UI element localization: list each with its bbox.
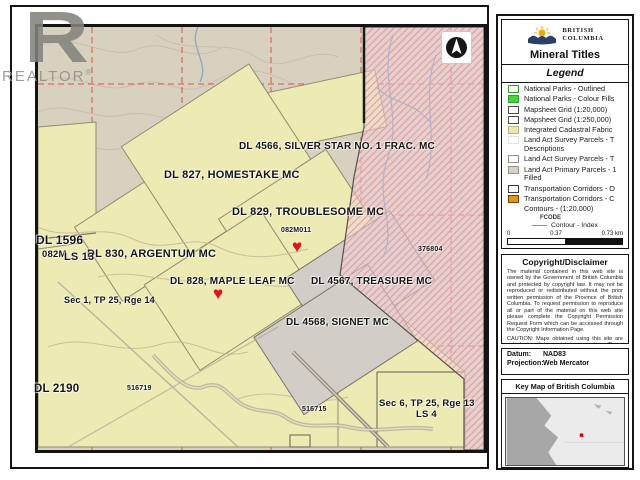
legend-item: Integrated Cadastral Fabric (508, 126, 624, 135)
tenure-label-516715: 516715 (302, 406, 327, 413)
legend-item: National Parks - Colour Fills (508, 95, 624, 104)
national-parks-outlined-swatch-icon (508, 85, 519, 93)
keymap-title: Key Map of British Columbia (502, 380, 628, 394)
parcel-label-signet: DL 4568, SIGNET MC (286, 317, 389, 328)
transport-corridors-o-swatch-icon (508, 185, 519, 193)
realtor-r-logo-icon: R (24, 2, 89, 74)
realtor-wordmark: REALTOR® (2, 68, 93, 85)
scale-tick-mid: 0.37 (550, 231, 562, 237)
agency-name: BRITISH COLUMBIA (562, 27, 603, 43)
legend-item: Transportation Corridors - C (508, 195, 624, 204)
parcel-label-argentum: DL 830, ARGENTUM MC (87, 248, 216, 260)
copyright-body: The material contained in this web site … (507, 269, 623, 334)
mapsheet-grid-20k-swatch-icon (508, 106, 519, 114)
land-act-survey-swatch-icon (508, 155, 519, 163)
parcel-label-silver-star: DL 4566, SILVER STAR NO. 1 FRAC. MC (239, 141, 435, 152)
bc-sun-mountains-icon (526, 24, 558, 46)
keymap-location-marker (580, 433, 583, 436)
legend-box: BRITISH COLUMBIA Mineral Titles Legend N… (501, 19, 629, 249)
registered-symbol: ® (85, 68, 93, 77)
scale-ratio: 1: 18,055 (507, 248, 623, 249)
parcel-label-maple-leaf: DL 828, MAPLE LEAF MC (170, 276, 295, 287)
legend-item: Land Act Primary Parcels - 1 Filled (508, 166, 624, 184)
parcel-label-ls4: LS 4 (416, 409, 437, 420)
parcel-label-dl1596: DL 1596 (36, 233, 83, 247)
legend-title: Legend (502, 67, 628, 79)
mapsheet-grid-250k-swatch-icon (508, 116, 519, 124)
mapsheet-label-082m: 082M (42, 249, 67, 260)
land-act-primary-swatch-icon (508, 166, 519, 174)
parcel-label-treasure: DL 4567, TREASURE MC (311, 276, 432, 287)
parcel-label-ls13: LS 13 (64, 251, 94, 263)
claim-marker-heart-icon: ♥ (292, 238, 302, 255)
copyright-caution: CAUTION: Maps obtained using this site a… (507, 336, 623, 344)
legend-item: Mapsheet Grid (1:250,000) (508, 116, 624, 125)
parcel-label-troublesome: DL 829, TROUBLESOME MC (232, 206, 384, 218)
scale-tick-end: 0.73 km (602, 231, 623, 237)
national-parks-fill-swatch-icon (508, 95, 519, 103)
projection-value: Web Mercator (543, 360, 589, 367)
datum-row: Datum: NAD83 (507, 351, 628, 358)
datum-box: Datum: NAD83 Projection: Web Mercator (501, 348, 629, 375)
claim-marker-heart-icon: ♥ (213, 285, 223, 302)
fcode-heading: FCODE (540, 215, 628, 221)
legend-item: Land Act Survey Parcels - T Descriptions (508, 136, 624, 154)
parcel-label-dl2190: DL 2190 (34, 383, 79, 395)
keymap-box: Key Map of British Columbia (501, 379, 629, 468)
mapsheet-code-label: 082M011 (281, 227, 311, 234)
tenure-label-376804: 376804 (418, 246, 443, 253)
scale-tick-0: 0 (507, 231, 510, 237)
keymap-canvas (505, 397, 625, 466)
scale-bar-block: 0 0.37 0.73 km 1: 18,055 (507, 231, 623, 249)
copyright-box: Copyright/Disclaimer The material contai… (501, 254, 629, 344)
copyright-title: Copyright/Disclaimer (502, 257, 628, 267)
bc-government-logo: BRITISH COLUMBIA (502, 24, 628, 46)
legend-item: Land Act Survey Parcels - T (508, 155, 624, 164)
cadastral-fabric-swatch-icon (508, 126, 519, 134)
parcel-label-sec1: Sec 1, TP 25, Rge 14 (64, 295, 155, 305)
datum-value: NAD83 (543, 351, 566, 358)
parcel-label-sec6: Sec 6, TP 25, Rge 13 (379, 398, 475, 409)
panel-title: Mineral Titles (502, 49, 628, 61)
contours-swatch-placeholder (508, 205, 519, 213)
legend-item: Mapsheet Grid (1:20,000) (508, 106, 624, 115)
parcel-label-homestake: DL 827, HOMESTAKE MC (164, 169, 300, 181)
land-act-survey-desc-swatch-icon (508, 136, 519, 144)
tenure-label-516719: 516719 (127, 385, 152, 392)
transport-corridors-c-swatch-icon (508, 195, 519, 203)
contour-line-icon (532, 225, 547, 226)
legend-item: National Parks - Outlined (508, 85, 624, 94)
scale-bar (507, 238, 623, 245)
legend-item: Contours - (1:20,000) (508, 205, 624, 214)
contour-index-row: Contour - Index (532, 222, 628, 229)
legend-item: Transportation Corridors - O (508, 185, 624, 194)
realtor-watermark: R REALTOR® (0, 0, 130, 95)
north-arrow-icon (441, 31, 472, 64)
projection-row: Projection: Web Mercator (507, 360, 628, 367)
legend-panel: BRITISH COLUMBIA Mineral Titles Legend N… (496, 14, 634, 470)
